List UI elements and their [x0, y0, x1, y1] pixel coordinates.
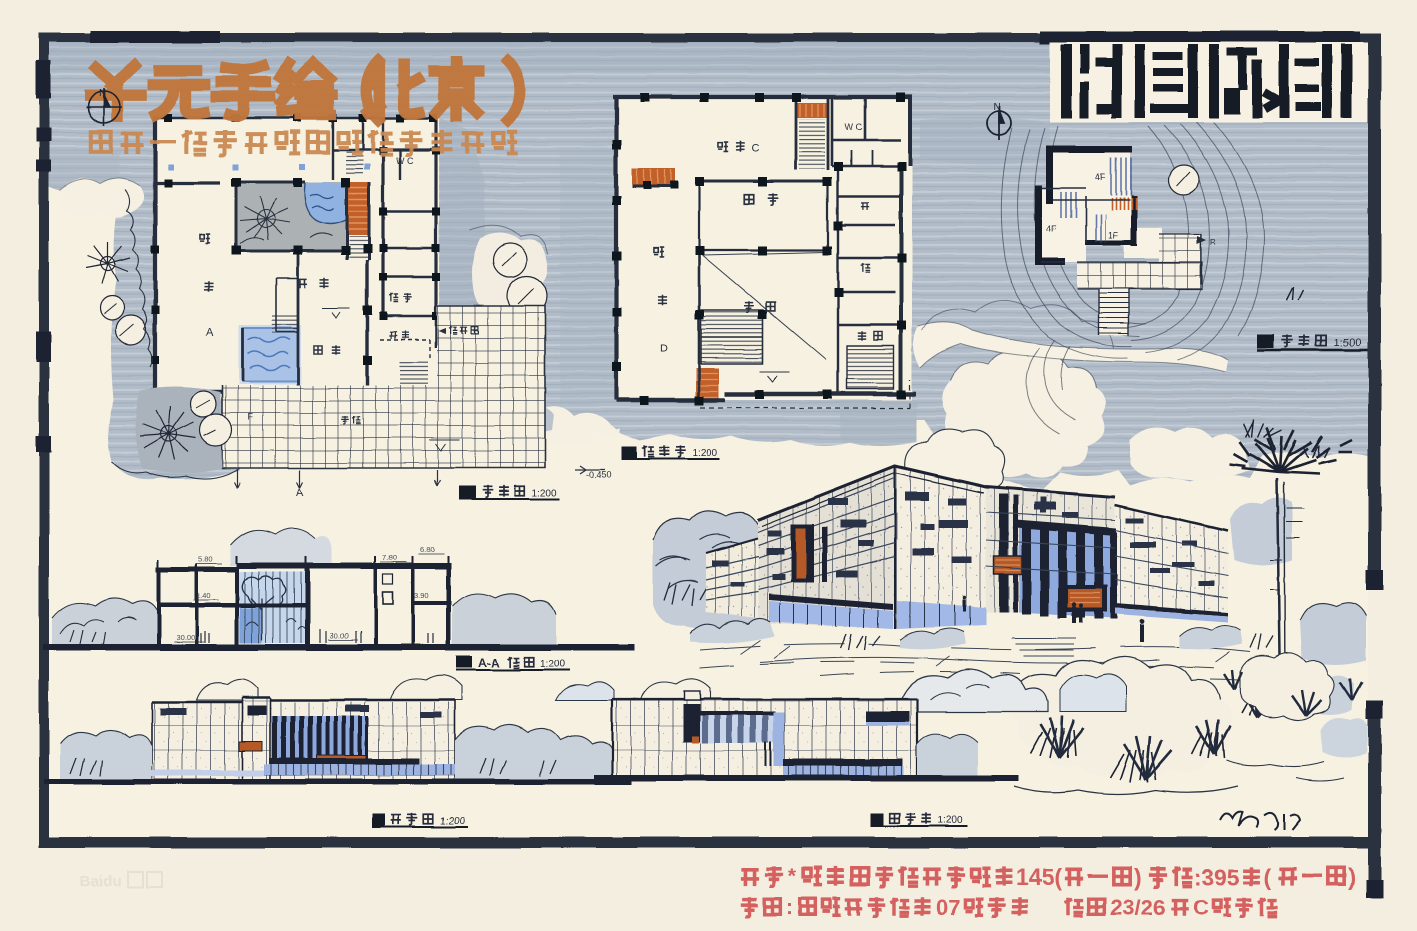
- svg-text:): ): [1348, 864, 1356, 890]
- svg-text:F: F: [248, 412, 254, 422]
- svg-text:145(: 145(: [1016, 864, 1062, 890]
- svg-text:30.00: 30.00: [330, 631, 349, 640]
- svg-text:A-A: A-A: [478, 656, 500, 670]
- svg-text:4F: 4F: [1046, 224, 1057, 234]
- svg-text:D: D: [660, 343, 668, 355]
- svg-text:3.90: 3.90: [414, 591, 429, 600]
- svg-text:N: N: [993, 102, 1000, 113]
- svg-text:1:200: 1:200: [532, 488, 557, 499]
- svg-text:*: *: [788, 864, 797, 889]
- svg-text:A: A: [206, 327, 214, 339]
- svg-text::: :: [786, 896, 793, 919]
- svg-text:2.40: 2.40: [196, 591, 211, 600]
- svg-text:1:200: 1:200: [540, 659, 565, 670]
- svg-text:23/26: 23/26: [1110, 895, 1165, 920]
- svg-text:7.80: 7.80: [382, 553, 397, 562]
- svg-text:1:200: 1:200: [938, 815, 963, 826]
- svg-text:6.80: 6.80: [420, 545, 435, 554]
- svg-text:1:200: 1:200: [440, 816, 465, 827]
- svg-text:(: (: [1264, 864, 1272, 890]
- svg-text:R: R: [1210, 238, 1216, 247]
- svg-text::395: :395: [1194, 864, 1240, 890]
- svg-text:A: A: [296, 487, 304, 499]
- svg-text:C: C: [752, 143, 760, 155]
- svg-text:5.80: 5.80: [198, 555, 213, 564]
- svg-text:N: N: [99, 88, 106, 99]
- svg-text:C: C: [1193, 895, 1209, 920]
- svg-text:1F: 1F: [1108, 230, 1119, 240]
- svg-text:-0.450: -0.450: [586, 470, 612, 480]
- svg-text:30.00: 30.00: [176, 633, 195, 642]
- svg-text:07: 07: [936, 895, 960, 920]
- svg-text:Baidu: Baidu: [80, 873, 122, 890]
- svg-text:1:200: 1:200: [692, 448, 717, 459]
- svg-text:W C: W C: [845, 122, 863, 132]
- svg-text:W C: W C: [396, 156, 414, 166]
- svg-text:4F: 4F: [1095, 172, 1106, 182]
- svg-text:1:500: 1:500: [1334, 337, 1362, 349]
- svg-text:): ): [1134, 864, 1142, 890]
